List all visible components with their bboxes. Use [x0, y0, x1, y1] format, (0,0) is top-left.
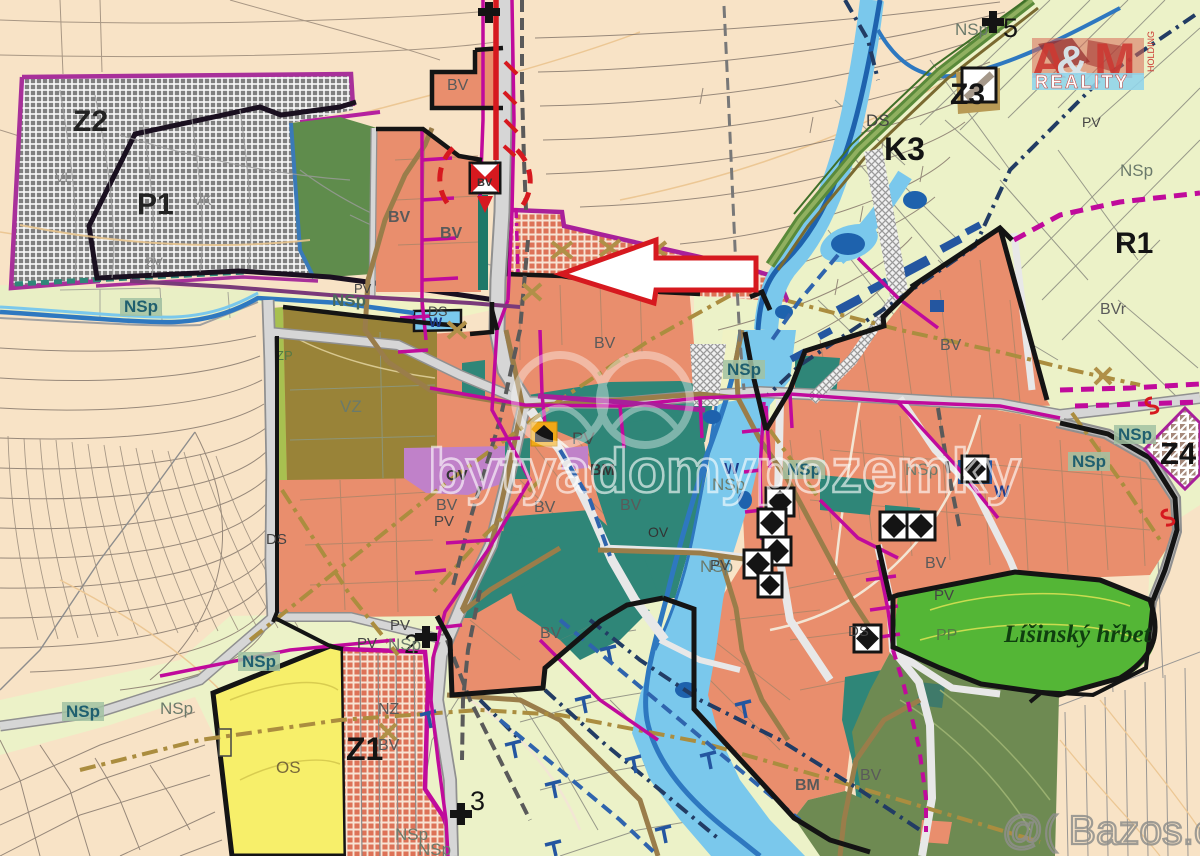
svg-text:NZ: NZ	[378, 701, 400, 718]
svg-text:BV: BV	[447, 77, 469, 94]
svg-text:Z1: Z1	[346, 731, 383, 767]
svg-text:5: 5	[1003, 13, 1018, 43]
svg-text:PP: PP	[936, 627, 957, 644]
svg-text:R1: R1	[1115, 227, 1153, 260]
svg-text:NSp: NSp	[1118, 425, 1152, 444]
svg-text:W: W	[429, 314, 443, 330]
svg-text:DS: DS	[848, 623, 869, 640]
svg-text:Z3: Z3	[950, 78, 985, 111]
svg-text:Z2: Z2	[73, 105, 108, 138]
svg-text:DS: DS	[866, 111, 890, 130]
svg-text:NSp: NSp	[727, 360, 761, 379]
svg-text:OV: OV	[648, 524, 669, 540]
svg-text:BV: BV	[925, 555, 947, 572]
svg-text:PV: PV	[934, 587, 954, 604]
svg-text:NSp: NSp	[388, 635, 421, 654]
svg-text:BV: BV	[388, 209, 411, 226]
svg-text:DS: DS	[266, 531, 287, 548]
svg-text:NSp: NSp	[1072, 452, 1106, 471]
svg-text:ZV: ZV	[145, 254, 164, 270]
svg-text:NSp: NSp	[1120, 161, 1153, 180]
svg-text:VK: VK	[193, 192, 212, 208]
svg-text:BVr: BVr	[1100, 301, 1127, 318]
svg-text:NSp: NSp	[242, 652, 276, 671]
svg-text:PV: PV	[354, 281, 372, 296]
svg-text:OS: OS	[276, 758, 301, 777]
svg-text:@( Bazos.cz: @( Bazos.cz	[1002, 807, 1200, 853]
svg-text:P1: P1	[137, 188, 174, 221]
svg-text:PV: PV	[434, 513, 454, 530]
svg-text:PV: PV	[390, 617, 410, 634]
svg-text:NSp: NSp	[66, 702, 100, 721]
svg-text:NSp: NSp	[418, 840, 451, 856]
svg-text:NSp: NSp	[160, 699, 193, 718]
svg-text:BV: BV	[594, 335, 616, 352]
svg-text:BV: BV	[940, 337, 962, 354]
svg-text:REALITY: REALITY	[1035, 72, 1130, 92]
svg-text:BV: BV	[540, 625, 562, 642]
svg-text:PV: PV	[1082, 114, 1101, 130]
svg-text:NSp: NSp	[955, 20, 988, 39]
svg-text:BV: BV	[860, 767, 882, 784]
svg-text:PV: PV	[710, 557, 730, 574]
svg-text:VL: VL	[55, 169, 72, 185]
svg-text:BV: BV	[440, 225, 463, 242]
svg-text:Z4: Z4	[1160, 436, 1197, 471]
svg-text:NSp: NSp	[124, 297, 158, 316]
svg-text:BV: BV	[477, 177, 493, 189]
svg-text:PV: PV	[357, 635, 377, 652]
svg-text:VZ: VZ	[340, 397, 362, 416]
svg-text:bytyadomypozemky: bytyadomypozemky	[428, 437, 1021, 506]
svg-text:BM: BM	[795, 777, 820, 794]
svg-text:HOLDING: HOLDING	[1146, 31, 1156, 72]
svg-text:3: 3	[470, 786, 485, 816]
svg-text:Líšinský hřbet: Líšinský hřbet	[1003, 621, 1152, 648]
svg-text:K3: K3	[884, 131, 925, 167]
